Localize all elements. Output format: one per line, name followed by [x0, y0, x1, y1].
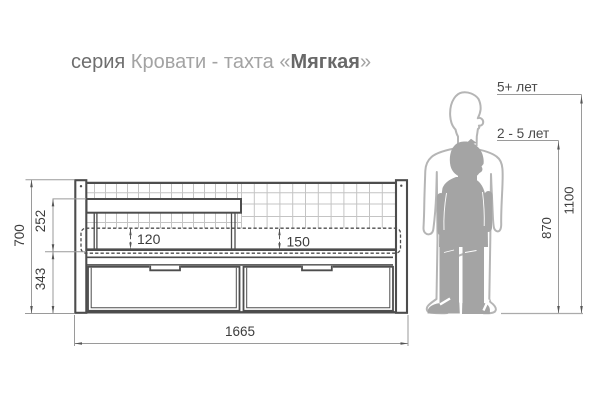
svg-text:150: 150	[287, 234, 311, 250]
svg-text:1665: 1665	[225, 324, 255, 339]
svg-text:120: 120	[137, 231, 161, 247]
svg-text:2 - 5 лет: 2 - 5 лет	[497, 126, 549, 141]
svg-text:343: 343	[33, 268, 48, 291]
svg-text:серия Кровати - тахта «Мягкая»: серия Кровати - тахта «Мягкая»	[71, 51, 371, 73]
svg-text:700: 700	[12, 224, 27, 247]
svg-text:1100: 1100	[562, 187, 577, 215]
svg-text:870: 870	[539, 217, 554, 239]
svg-text:5+ лет: 5+ лет	[497, 80, 538, 95]
svg-text:252: 252	[33, 210, 48, 233]
